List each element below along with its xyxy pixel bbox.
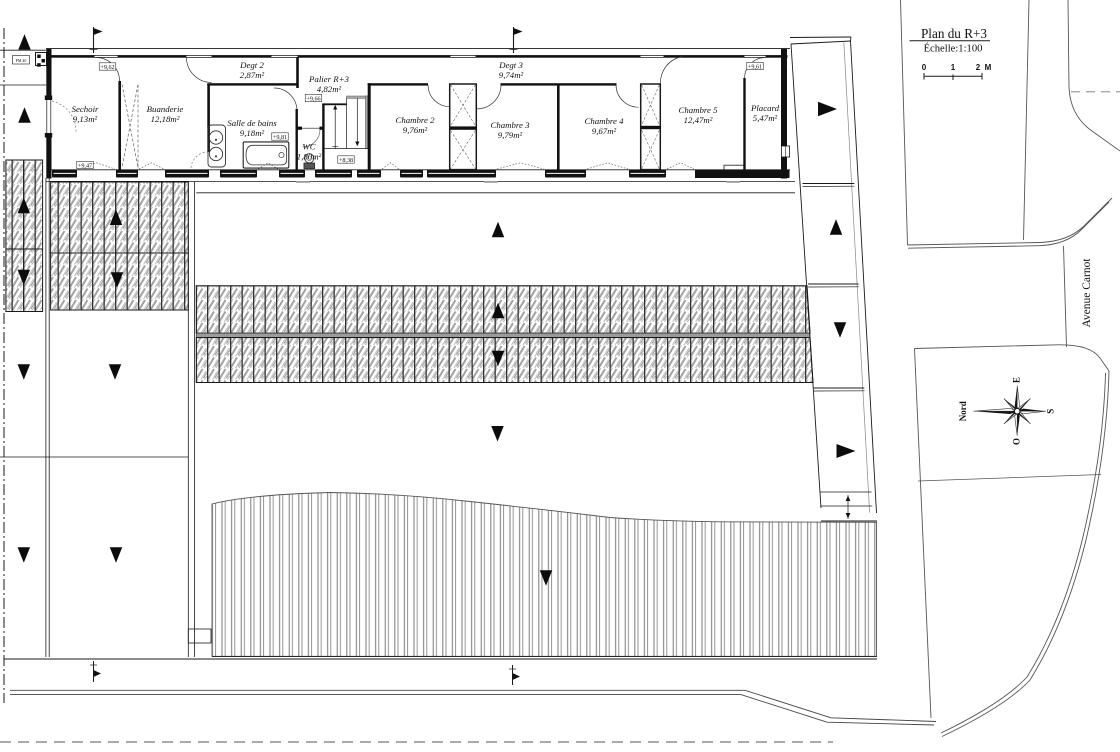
svg-text:9,13m²: 9,13m² [73, 114, 98, 124]
svg-text:2: 2 [976, 63, 981, 72]
svg-text:Palier R+3: Palier R+3 [308, 74, 349, 84]
svg-text:Nord: Nord [958, 401, 968, 421]
svg-text:M: M [985, 63, 992, 72]
svg-text:0: 0 [922, 63, 927, 72]
svg-text:+9,66: +9,66 [306, 95, 320, 102]
svg-text:9,76m²: 9,76m² [403, 125, 428, 135]
svg-text:PM 40: PM 40 [16, 58, 27, 63]
svg-text:5,47m²: 5,47m² [753, 113, 778, 123]
svg-text:9,18m²: 9,18m² [240, 128, 265, 138]
svg-text:+9,62: +9,62 [100, 64, 114, 71]
svg-text:12,47m²: 12,47m² [684, 115, 713, 125]
svg-text:1: 1 [951, 63, 956, 72]
svg-text:Chambre 3: Chambre 3 [490, 120, 530, 130]
svg-text:+8,38: +8,38 [339, 157, 353, 164]
svg-text:Chambre 2: Chambre 2 [395, 115, 435, 125]
svg-text:Avenue Carnot: Avenue Carnot [1081, 258, 1093, 328]
svg-text:S: S [1046, 409, 1056, 414]
svg-text:E: E [1011, 377, 1021, 383]
svg-text:Échelle:1:100: Échelle:1:100 [924, 43, 983, 55]
svg-text:Chambre 5: Chambre 5 [678, 105, 718, 115]
svg-text:Buanderie: Buanderie [147, 104, 184, 114]
svg-text:Salle de bains: Salle de bains [227, 118, 277, 128]
svg-text:Degt 2: Degt 2 [239, 60, 264, 70]
svg-text:+9,61: +9,61 [748, 63, 762, 70]
svg-text:Sechoir: Sechoir [72, 104, 99, 114]
svg-text:9,67m²: 9,67m² [592, 126, 617, 136]
svg-text:12,18m²: 12,18m² [151, 114, 180, 124]
svg-text:+9,47: +9,47 [78, 162, 92, 169]
svg-text:1,80m²: 1,80m² [297, 152, 322, 162]
svg-text:9,79m²: 9,79m² [498, 130, 523, 140]
svg-text:Chambre 4: Chambre 4 [584, 116, 624, 126]
svg-text:Degt 3: Degt 3 [498, 60, 523, 70]
svg-text:+9,81: +9,81 [273, 134, 287, 141]
svg-text:O: O [1011, 438, 1021, 445]
svg-text:4,82m²: 4,82m² [317, 84, 342, 94]
svg-text:Placard: Placard [750, 103, 780, 113]
svg-text:WC: WC [302, 142, 315, 152]
svg-text:9,74m²: 9,74m² [499, 70, 524, 80]
svg-text:2,87m²: 2,87m² [240, 70, 265, 80]
svg-text:Plan du R+3: Plan du R+3 [921, 26, 987, 41]
